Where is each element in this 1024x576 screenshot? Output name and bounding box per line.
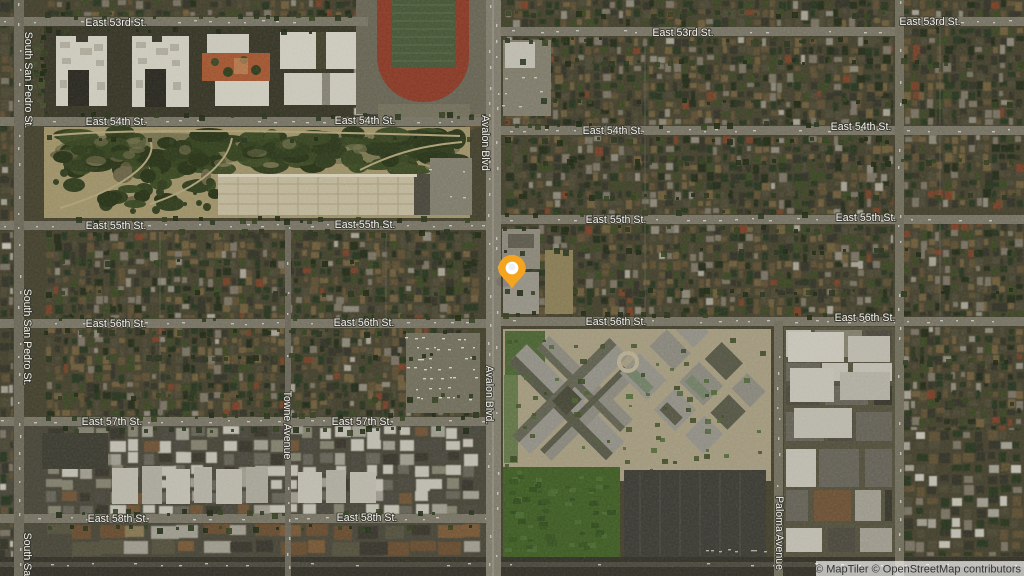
svg-text:Avalon Blvd.: Avalon Blvd. <box>483 366 495 425</box>
svg-text:East 53rd St.: East 53rd St. <box>899 16 960 28</box>
svg-text:East 54th St.: East 54th St. <box>86 116 147 128</box>
svg-text:East 57th St.: East 57th St. <box>82 416 143 428</box>
svg-text:East 55th St.: East 55th St. <box>335 219 396 231</box>
svg-text:East 54th St.: East 54th St. <box>335 115 396 127</box>
svg-text:East 57th St.: East 57th St. <box>332 416 393 428</box>
svg-text:© MapTiler © OpenStreetMap con: © MapTiler © OpenStreetMap contributors <box>815 564 1021 576</box>
svg-text:East 56th St.: East 56th St. <box>835 312 896 324</box>
svg-text:East 56th St.: East 56th St. <box>334 317 395 329</box>
svg-text:East 56th St.: East 56th St. <box>86 318 147 330</box>
svg-text:South San Pedro St.: South San Pedro St. <box>21 289 33 386</box>
svg-text:South San Pedr: South San Pedr <box>21 533 33 576</box>
svg-text:East 55th St.: East 55th St. <box>86 220 147 232</box>
svg-text:East 54th St.: East 54th St. <box>831 121 892 133</box>
svg-text:East 56th St.: East 56th St. <box>586 316 647 328</box>
svg-text:East 58th St.: East 58th St. <box>337 512 398 524</box>
svg-text:East 55th St.: East 55th St. <box>836 212 897 224</box>
svg-text:South San Pedro St.: South San Pedro St. <box>22 32 34 129</box>
svg-text:Avalon Blvd: Avalon Blvd <box>479 115 491 171</box>
svg-text:East 53rd St.: East 53rd St. <box>85 17 146 29</box>
svg-text:East 53rd St.: East 53rd St. <box>652 27 713 39</box>
svg-text:East 54th St.: East 54th St. <box>583 125 644 137</box>
svg-text:East 55th St.: East 55th St. <box>586 214 647 226</box>
svg-text:Towne Avenue: Towne Avenue <box>281 391 293 460</box>
svg-text:Paloma Avenue: Paloma Avenue <box>773 496 785 570</box>
svg-text:East 58th St.: East 58th St. <box>88 513 149 525</box>
